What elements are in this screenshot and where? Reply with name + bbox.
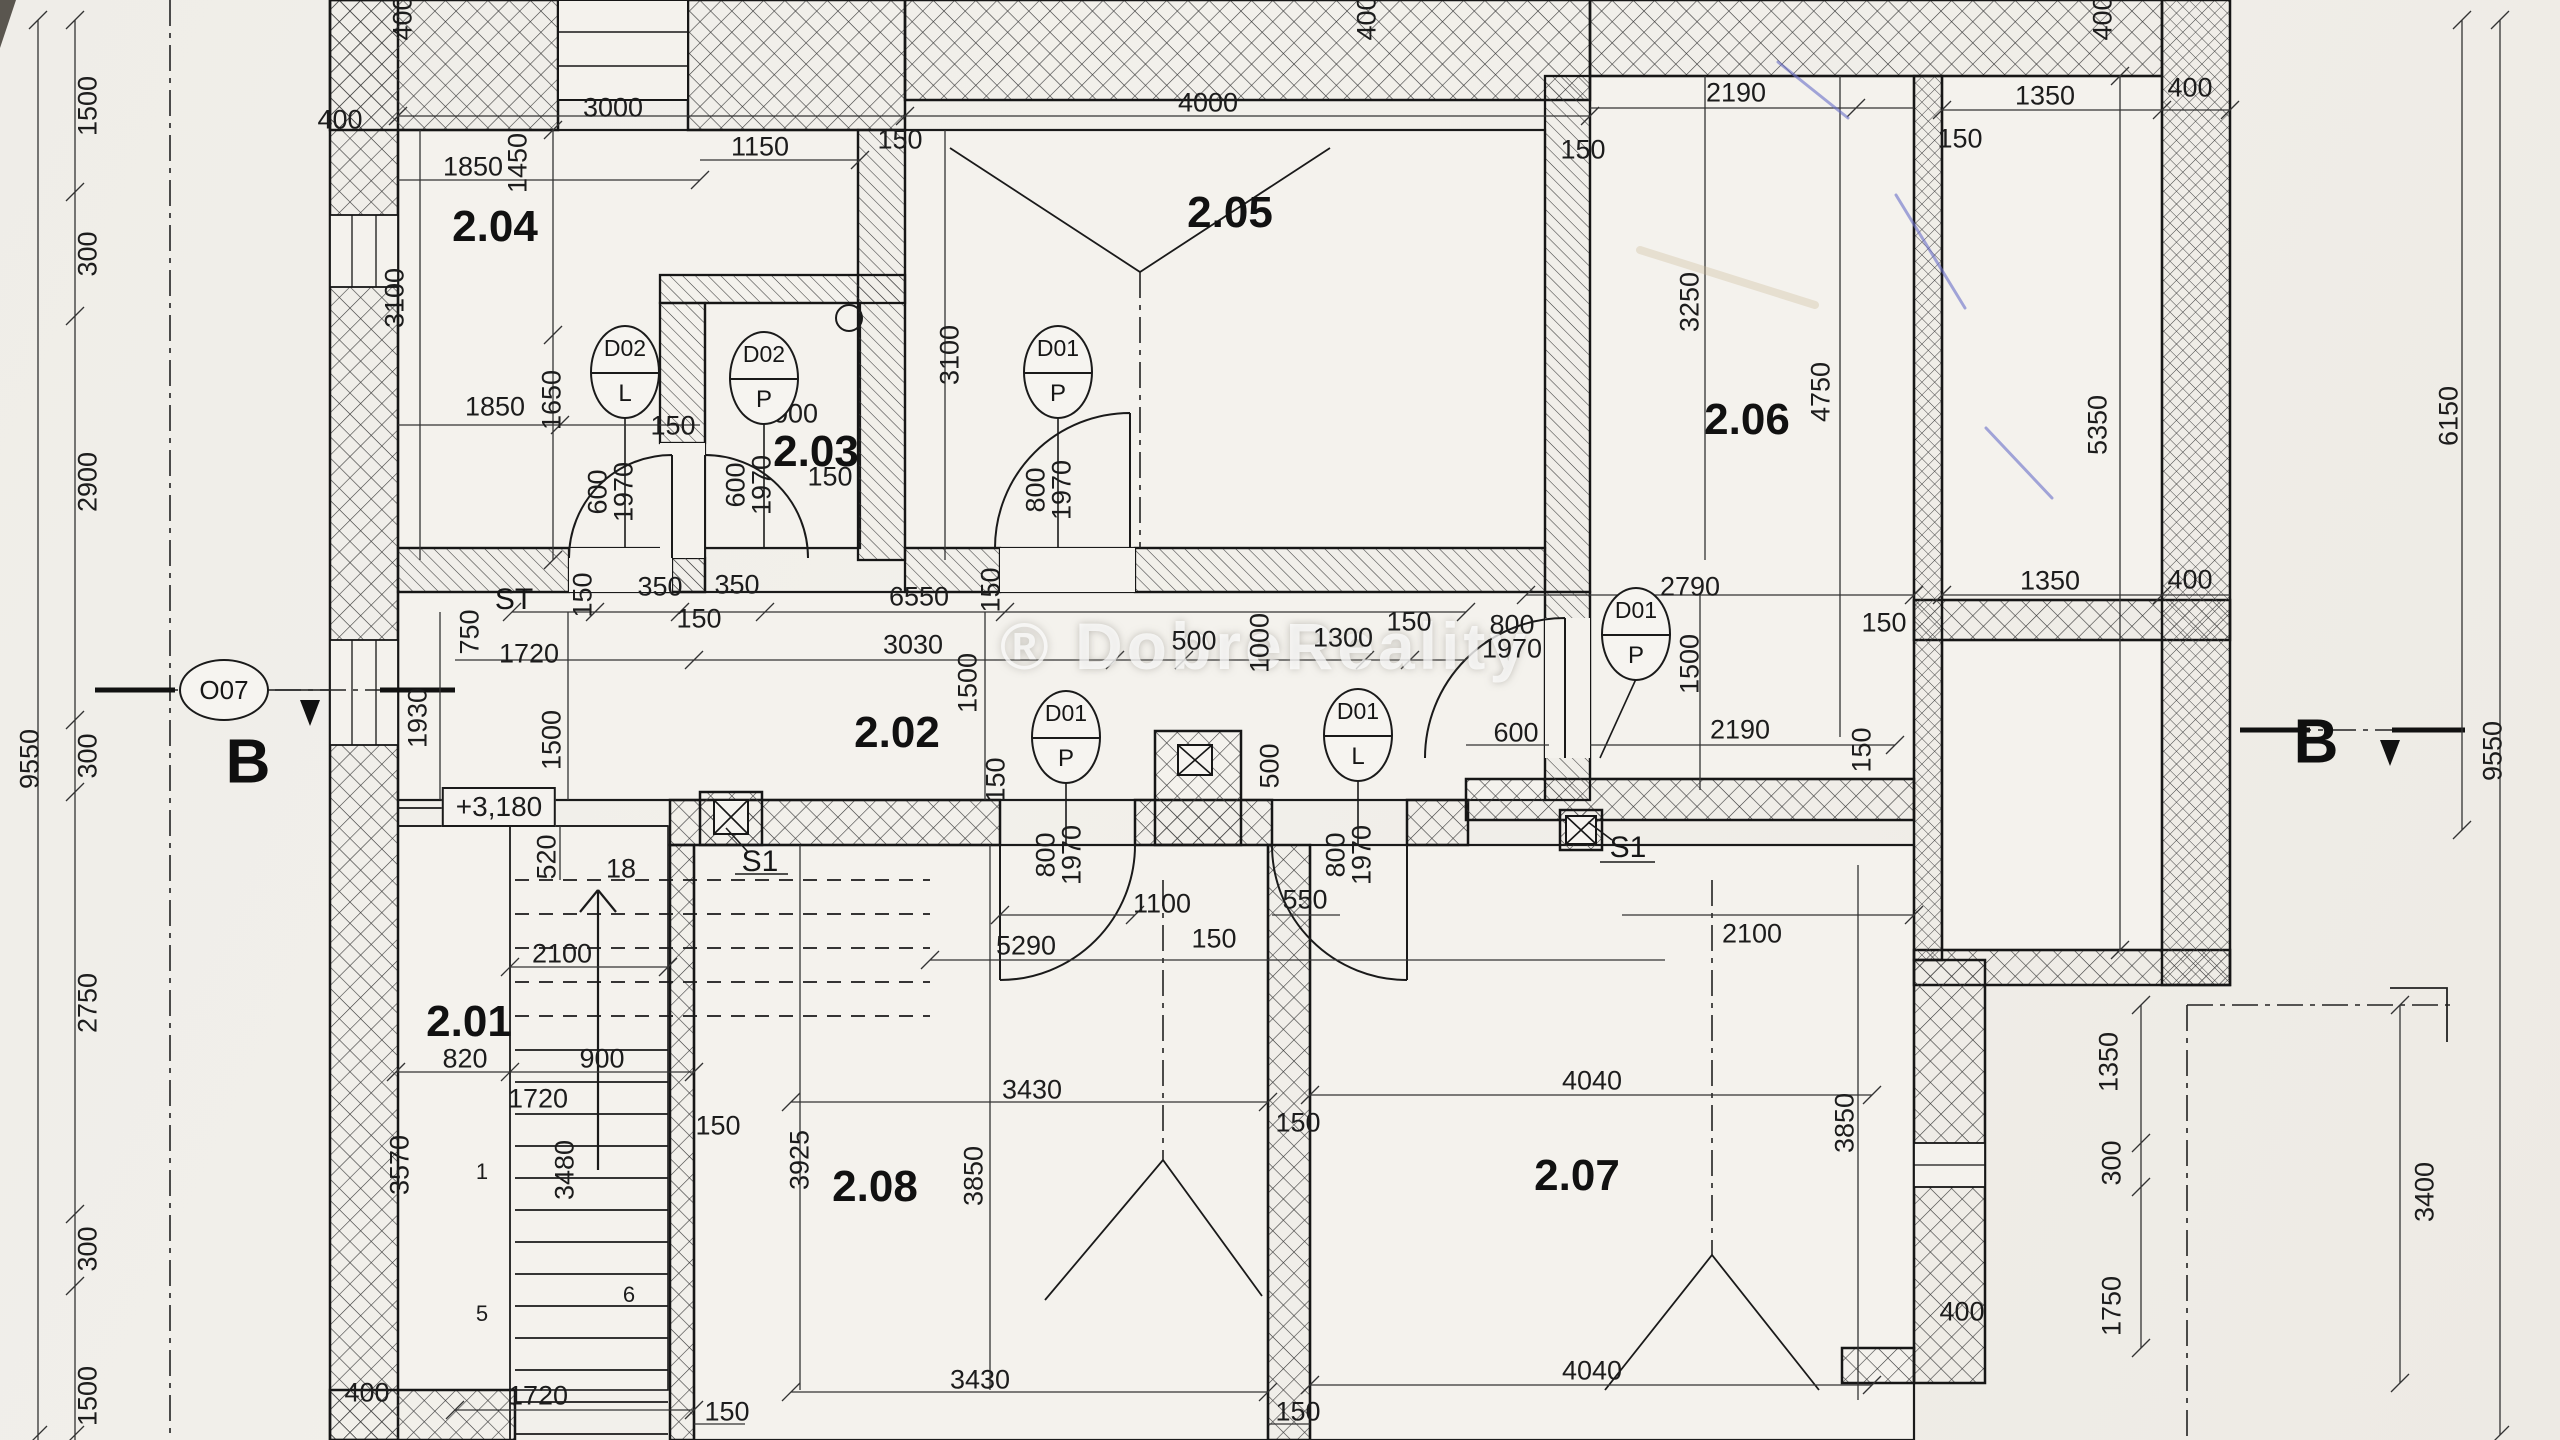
tag-divider [592, 372, 658, 374]
room-number-label: 2.08 [832, 1162, 918, 1212]
room-number-label: 2.01 [426, 997, 512, 1047]
dim-label: 1850 [443, 152, 503, 183]
door-code: D01 [1025, 335, 1091, 362]
dim-label: 1100 [1133, 889, 1191, 920]
door-leaf: P [1033, 745, 1099, 773]
dim-label: 2100 [532, 939, 592, 970]
dim-label: 300 [73, 231, 104, 276]
dim-label: 3430 [950, 1365, 1010, 1396]
dim-label: 150 [1937, 124, 1982, 155]
stair-step-number: 5 [476, 1301, 488, 1327]
dim-label: 1970 [609, 462, 640, 522]
door-code: D02 [731, 341, 797, 368]
dim-label: 1720 [508, 1084, 568, 1115]
dim-label: 4750 [1806, 362, 1837, 422]
room-number-label: 2.03 [773, 427, 859, 477]
dim-label: 1300 [1313, 623, 1373, 654]
dim-label: 150 [568, 572, 599, 617]
door-code: D02 [592, 335, 658, 362]
dim-label: 6150 [2434, 386, 2465, 446]
dim-label: 1350 [2015, 81, 2075, 112]
dim-label: 1970 [1047, 460, 1078, 520]
dim-label: 1350 [2020, 566, 2080, 597]
dim-label: 1970 [1482, 634, 1542, 665]
dim-label: 6550 [889, 582, 949, 613]
chimney-tag: S1 [742, 845, 779, 879]
dim-label: 1000 [1245, 613, 1276, 673]
dim-label: 150 [1847, 727, 1878, 772]
door-tag-D01-P: D01P [1031, 690, 1101, 784]
dim-label: 4000 [1178, 88, 1238, 119]
dim-label: 350 [714, 570, 759, 601]
stair-step-number: 1 [476, 1159, 488, 1185]
dim-label: 1450 [503, 133, 534, 193]
dim-label: 1150 [731, 132, 789, 163]
room-number-label: 2.05 [1187, 188, 1273, 238]
chimney-tag: S1 [1610, 831, 1647, 865]
dim-label: 3430 [1002, 1075, 1062, 1106]
dim-label: 3400 [2410, 1162, 2441, 1222]
dim-label: 4040 [1562, 1066, 1622, 1097]
dim-label: 150 [695, 1111, 740, 1142]
dim-label: 300 [2097, 1140, 2128, 1185]
floor-plan-drawing [0, 0, 2560, 1440]
dim-label: 3000 [583, 93, 643, 124]
dim-label: 2750 [73, 973, 104, 1033]
dim-label: 150 [1191, 924, 1236, 955]
dim-label: 3850 [959, 1146, 990, 1206]
door-tag-D01-P: D01P [1601, 587, 1671, 681]
dim-label: 150 [1275, 1397, 1320, 1428]
dim-label: 1720 [499, 639, 559, 670]
dim-label: 1500 [73, 76, 104, 136]
tag-divider [1025, 372, 1091, 374]
dim-label: 1650 [537, 370, 568, 430]
dim-label: 500 [1255, 743, 1286, 788]
dim-label: 400 [317, 105, 362, 136]
dim-label: 3480 [550, 1140, 581, 1200]
dim-label: 3570 [385, 1135, 416, 1195]
dim-label: 3850 [1830, 1093, 1861, 1153]
dim-label: 750 [455, 609, 486, 654]
dim-label: 3100 [935, 325, 966, 385]
door-tag-D02-L: D02L [590, 325, 660, 419]
dim-label: 1500 [1675, 634, 1706, 694]
dim-label: 400 [1939, 1297, 1984, 1328]
stair-tag: ST [495, 583, 533, 617]
door-tag-D01-P: D01P [1023, 325, 1093, 419]
dim-label: 2190 [1706, 78, 1766, 109]
section-letter: B [226, 727, 271, 798]
dim-label: 3925 [785, 1130, 816, 1190]
room-number-label: 2.07 [1534, 1151, 1620, 1201]
dim-label: 150 [1275, 1108, 1320, 1139]
door-tag-D01-L: D01L [1323, 688, 1393, 782]
section-letter: B [2294, 707, 2339, 778]
floorplan-page: ® DobreReality 4004003000185014501150150… [0, 0, 2560, 1440]
dim-label: 150 [650, 411, 695, 442]
tag-divider [1033, 737, 1099, 739]
photo-corner-artifact [0, 0, 16, 48]
dim-label: 1720 [508, 1381, 568, 1412]
dim-label: 600 [1493, 718, 1538, 749]
room-number-label: 2.02 [854, 708, 940, 758]
window-tag-O07: O07 [179, 659, 269, 721]
stair-step-number: 6 [623, 1282, 635, 1308]
door-code: D01 [1325, 698, 1391, 725]
door-code: D01 [1603, 597, 1669, 624]
dim-label: 150 [1386, 607, 1431, 638]
dim-label: 1500 [537, 710, 568, 770]
dim-label: 3030 [883, 630, 943, 661]
tag-divider [1603, 634, 1669, 636]
dim-label: 1930 [403, 688, 434, 748]
dim-label: 820 [442, 1044, 487, 1075]
tag-divider [1325, 735, 1391, 737]
dim-label: 150 [981, 757, 1012, 802]
dim-label: 9550 [2478, 721, 2509, 781]
dim-label: 9550 [15, 729, 46, 789]
dim-label: 3100 [380, 268, 411, 328]
door-leaf: P [731, 386, 797, 414]
dim-label: 5350 [2083, 395, 2114, 455]
dim-label: 1500 [953, 653, 984, 713]
dim-label: 1750 [2097, 1276, 2128, 1336]
dim-label: 150 [877, 125, 922, 156]
dim-label: 1970 [1057, 825, 1088, 885]
roof-outline-corner [2390, 988, 2447, 1042]
room-number-label: 2.06 [1704, 395, 1790, 445]
dim-label: 400 [2167, 565, 2212, 596]
dim-label: 400 [1352, 0, 1383, 41]
door-leaf: P [1603, 642, 1669, 670]
dim-label: 4040 [1562, 1356, 1622, 1387]
dim-label: 2900 [73, 452, 104, 512]
tag-divider [731, 378, 797, 380]
door-leaf: L [1325, 743, 1391, 771]
dim-label: 400 [2088, 0, 2119, 41]
dim-label: 5290 [996, 931, 1056, 962]
dim-label: 3250 [1675, 272, 1706, 332]
dim-label: 150 [1560, 135, 1605, 166]
dim-label: 150 [1861, 608, 1906, 639]
dim-label: 18 [606, 854, 636, 885]
dim-label: 400 [344, 1378, 389, 1409]
door-tag-D02-P: D02P [729, 331, 799, 425]
dim-label: 150 [704, 1397, 749, 1428]
level-mark: +3,180 [442, 787, 556, 827]
dim-label: 2100 [1722, 919, 1782, 950]
door-leaf: L [592, 380, 658, 408]
dim-label: 550 [1282, 885, 1327, 916]
dim-label: 350 [637, 572, 682, 603]
dim-label: 300 [73, 733, 104, 778]
dim-label: 400 [2167, 73, 2212, 104]
door-code: D01 [1033, 700, 1099, 727]
dim-label: 1850 [465, 392, 525, 423]
room-number-label: 2.04 [452, 202, 538, 252]
dim-label: 500 [1171, 626, 1216, 657]
dim-label: 1970 [1347, 825, 1378, 885]
dim-label: 300 [73, 1226, 104, 1271]
dim-label: 1500 [73, 1366, 104, 1426]
dim-label: 400 [388, 0, 419, 41]
dim-label: 1350 [2094, 1032, 2125, 1092]
dim-label: 150 [676, 604, 721, 635]
dim-label: 520 [532, 834, 563, 879]
door-leaf: P [1025, 380, 1091, 408]
dim-label: 150 [976, 567, 1007, 612]
dim-label: 900 [579, 1044, 624, 1075]
dim-label: 2190 [1710, 715, 1770, 746]
